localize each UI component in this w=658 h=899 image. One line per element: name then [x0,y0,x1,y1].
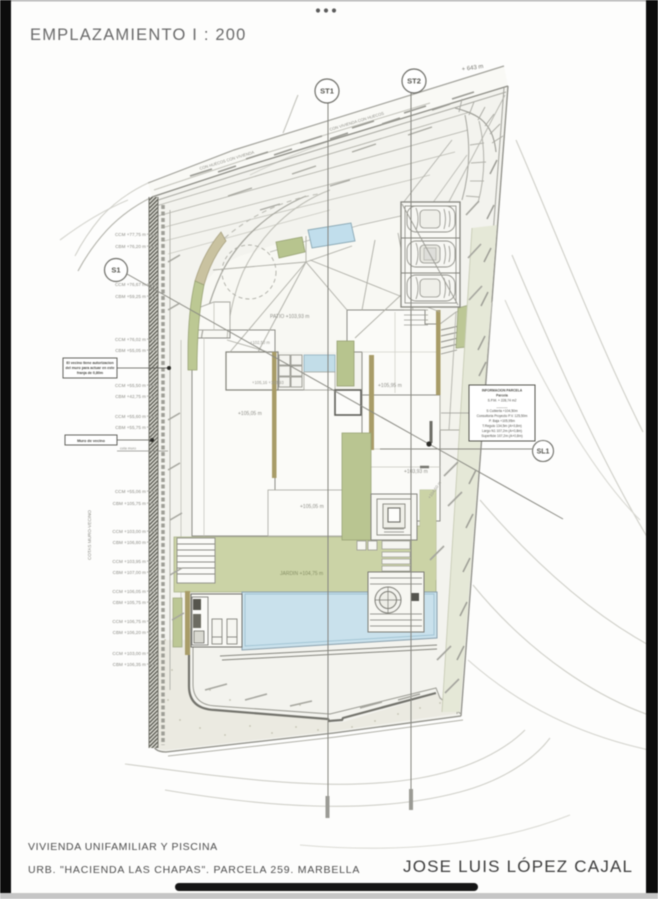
svg-text:CCM +55,50 m: CCM +55,50 m [115,383,146,388]
svg-text:CBM +55,75 m: CBM +55,75 m [115,425,146,430]
svg-text:PATIO +103,93 m: PATIO +103,93 m [270,314,309,320]
svg-text:El vecino tiene autorizacion: El vecino tiene autorizacion [66,361,113,365]
svg-text:VIVIENDA UNIFAMILIAR Y PISCINA: VIVIENDA UNIFAMILIAR Y PISCINA [28,841,218,853]
svg-text:ST1: ST1 [320,87,334,96]
svg-text:JOSE LUIS LÓPEZ CAJAL: JOSE LUIS LÓPEZ CAJAL [403,857,633,876]
svg-text:Largo N1 107,2m (A+0,8m): Largo N1 107,2m (A+0,8m) [482,429,522,433]
svg-text:CCM +76,02 m: CCM +76,02 m [115,337,146,342]
svg-text:cota muro: cota muro [120,447,136,451]
svg-text:CCM +103,95 m: CCM +103,95 m [112,559,146,564]
svg-text:+105,16 +103,93: +105,16 +103,93 [252,380,284,385]
svg-text:CBM +59,25 m: CBM +59,25 m [115,294,146,299]
svg-text:URB. "HACIENDA LAS CHAPAS". PA: URB. "HACIENDA LAS CHAPAS". PARCELA 259.… [28,864,360,876]
svg-text:______: ______ [495,404,507,408]
svg-text:COTAS MURO-VECINO: COTAS MURO-VECINO [87,510,92,560]
svg-text:+105,05 m: +105,05 m [300,504,324,510]
svg-text:T.Regulo 134,5m (A+0,8m): T.Regulo 134,5m (A+0,8m) [482,424,522,428]
svg-text:Superficie 107,2m (A+0,8m): Superficie 107,2m (A+0,8m) [481,434,522,438]
svg-text:CBM +76,20 m: CBM +76,20 m [115,244,146,249]
svg-text:S.P.M. + 228,74 m2: S.P.M. + 228,74 m2 [488,399,517,403]
svg-text:CCM +76,67 m: CCM +76,67 m [115,282,146,287]
svg-text:CCM +106,75 m: CCM +106,75 m [112,619,146,624]
svg-text:+103,93 m: +103,93 m [404,469,428,475]
svg-text:CBM +106,80 m: CBM +106,80 m [113,540,146,545]
svg-text:S Cubierta +104,50m: S Cubierta +104,50m [486,409,518,413]
svg-text:JARDIN +104,75 m: JARDIN +104,75 m [280,571,323,577]
svg-text:CBM +42,75 m: CBM +42,75 m [115,394,146,399]
svg-text:CBM +55,05 m: CBM +55,05 m [115,348,146,353]
svg-text:del muro para actuar en este: del muro para actuar en este [66,366,115,370]
svg-text:CCM +103,00 m: CCM +103,00 m [112,651,146,656]
svg-text:EMPLAZAMIENTO I : 200: EMPLAZAMIENTO I : 200 [30,26,247,44]
svg-text:CBM +105,75 m: CBM +105,75 m [113,600,146,605]
svg-text:Muro de vecino: Muro de vecino [77,439,106,443]
svg-text:+105,05 m: +105,05 m [238,411,262,417]
svg-text:CCM +77,75 m: CCM +77,75 m [115,232,146,237]
svg-text:CBM +107,00 m: CBM +107,00 m [113,570,146,575]
svg-text:CCM +55,06 m: CCM +55,06 m [115,489,146,494]
svg-text:+102,50 m: +102,50 m [250,340,270,345]
svg-text:SL1: SL1 [537,449,550,456]
svg-text:+105,95 m: +105,95 m [378,383,402,389]
svg-text:ST2: ST2 [407,77,421,86]
svg-text:CCM +55,60 m: CCM +55,60 m [115,414,146,419]
svg-text:CCM +103,00 m: CCM +103,00 m [112,529,146,534]
svg-text:S1: S1 [111,266,120,275]
svg-text:Consultoria Proyecto P.V. 125,: Consultoria Proyecto P.V. 125,50m [477,414,528,418]
svg-text:INFORMACION PARCELA: INFORMACION PARCELA [482,389,523,393]
svg-text:CBM +106,20 m: CBM +106,20 m [113,630,146,635]
svg-text:CBM +105,75 m: CBM +105,75 m [113,501,146,506]
svg-text:franja de 0,80m: franja de 0,80m [77,371,103,375]
svg-text:CCM +106,05 m: CCM +106,05 m [112,589,146,594]
svg-text:CBM +106,35 m: CBM +106,35 m [113,662,146,667]
svg-text:P. Baja +105,95m: P. Baja +105,95m [489,419,515,423]
svg-text:Parcela: Parcela [496,394,508,398]
